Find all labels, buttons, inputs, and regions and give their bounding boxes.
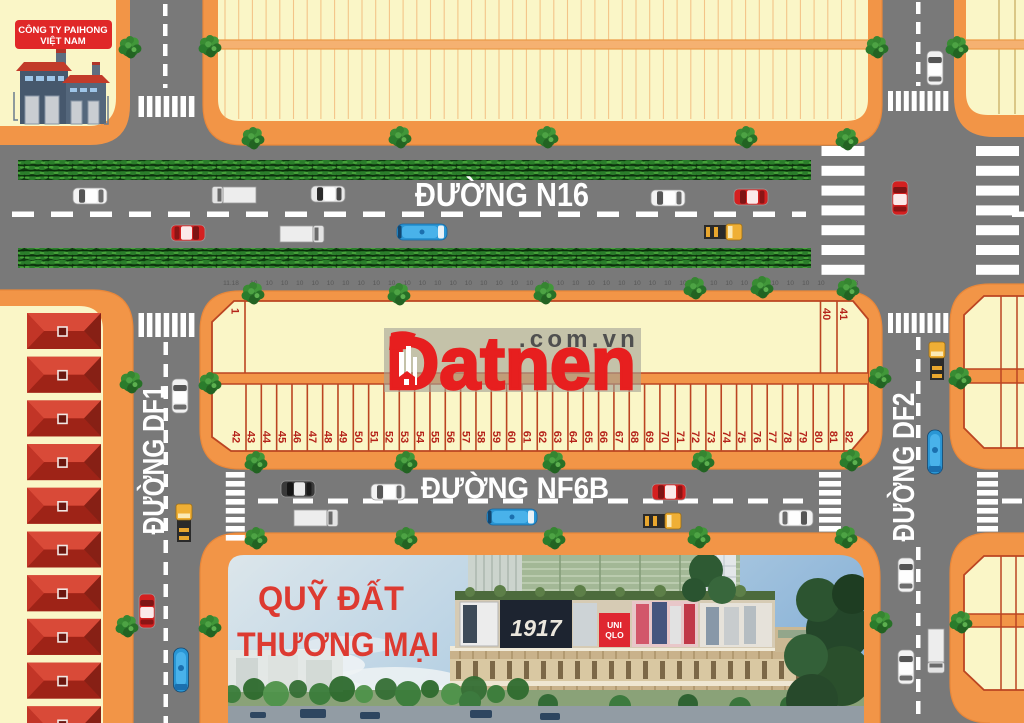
svg-text:10: 10: [511, 280, 519, 287]
svg-text:10: 10: [633, 280, 641, 287]
svg-text:46: 46: [291, 431, 303, 443]
svg-text:CÔNG TY PAIHONG: CÔNG TY PAIHONG: [18, 24, 107, 36]
svg-text:70: 70: [659, 431, 671, 443]
svg-text:73: 73: [705, 431, 717, 443]
svg-text:40: 40: [820, 308, 832, 320]
svg-text:54: 54: [413, 431, 425, 444]
svg-text:78: 78: [781, 431, 793, 443]
svg-text:63: 63: [551, 431, 563, 443]
svg-text:QUỸ ĐẤT: QUỸ ĐẤT: [258, 580, 404, 618]
svg-text:VIỆT NAM: VIỆT NAM: [40, 35, 85, 47]
svg-text:10: 10: [572, 280, 580, 287]
svg-text:72: 72: [689, 431, 701, 443]
svg-text:10: 10: [357, 280, 365, 287]
svg-text:10: 10: [342, 280, 350, 287]
svg-text:79: 79: [797, 431, 809, 443]
svg-text:10: 10: [495, 280, 503, 287]
svg-text:10: 10: [603, 280, 611, 287]
svg-text:64: 64: [567, 431, 579, 444]
svg-text:71: 71: [674, 431, 686, 443]
svg-text:67: 67: [613, 431, 625, 443]
svg-text:68: 68: [628, 431, 640, 443]
svg-text:53: 53: [398, 431, 410, 443]
svg-text:10: 10: [557, 280, 565, 287]
svg-text:10: 10: [281, 280, 289, 287]
svg-text:10: 10: [802, 280, 810, 287]
svg-text:80: 80: [812, 431, 824, 443]
svg-text:58: 58: [475, 431, 487, 443]
svg-text:10: 10: [449, 280, 457, 287]
svg-text:69: 69: [643, 431, 655, 443]
svg-text:49: 49: [337, 431, 349, 443]
svg-text:Datnen: Datnen: [386, 322, 636, 405]
svg-text:10: 10: [771, 280, 779, 287]
svg-text:65: 65: [582, 431, 594, 443]
svg-text:10: 10: [434, 280, 442, 287]
svg-text:43: 43: [245, 431, 257, 443]
svg-text:QLO: QLO: [605, 630, 624, 640]
svg-text:66: 66: [597, 431, 609, 443]
svg-text:10: 10: [787, 280, 795, 287]
svg-text:75: 75: [735, 431, 747, 443]
svg-text:10: 10: [526, 280, 534, 287]
svg-text:THƯƠNG MẠI: THƯƠNG MẠI: [237, 626, 439, 664]
svg-text:ĐƯỜNG DF2: ĐƯỜNG DF2: [885, 393, 921, 542]
svg-text:10: 10: [710, 280, 718, 287]
svg-text:10: 10: [618, 280, 626, 287]
svg-text:10: 10: [296, 280, 304, 287]
svg-text:47: 47: [306, 431, 318, 443]
svg-text:ĐƯỜNG N16: ĐƯỜNG N16: [415, 176, 589, 213]
svg-text:77: 77: [766, 431, 778, 443]
svg-text:55: 55: [429, 431, 441, 443]
svg-text:10: 10: [649, 280, 657, 287]
svg-text:59: 59: [490, 431, 502, 443]
svg-text:1: 1: [229, 308, 241, 314]
svg-text:81: 81: [827, 431, 839, 443]
svg-text:11.18: 11.18: [223, 280, 239, 287]
svg-text:42: 42: [229, 431, 241, 443]
svg-text:ĐƯỜNG DF1: ĐƯỜNG DF1: [135, 386, 171, 535]
svg-text:76: 76: [751, 431, 763, 443]
svg-text:10: 10: [265, 280, 273, 287]
svg-text:10: 10: [311, 280, 319, 287]
svg-text:82: 82: [843, 431, 855, 443]
svg-text:52: 52: [383, 431, 395, 443]
svg-text:74: 74: [720, 431, 732, 444]
svg-text:10: 10: [587, 280, 595, 287]
svg-text:10: 10: [741, 280, 749, 287]
svg-text:45: 45: [275, 431, 287, 443]
svg-text:60: 60: [505, 431, 517, 443]
svg-text:10: 10: [419, 280, 427, 287]
svg-text:10: 10: [725, 280, 733, 287]
svg-text:51: 51: [367, 431, 379, 443]
svg-text:48: 48: [321, 431, 333, 443]
svg-text:10: 10: [465, 280, 473, 287]
svg-text:50: 50: [352, 431, 364, 443]
svg-text:10: 10: [480, 280, 488, 287]
svg-text:44: 44: [260, 431, 272, 444]
svg-text:41: 41: [837, 308, 849, 320]
svg-text:10: 10: [664, 280, 672, 287]
svg-text:10: 10: [817, 280, 825, 287]
svg-text:UNI: UNI: [607, 620, 622, 630]
svg-text:ĐƯỜNG NF6B: ĐƯỜNG NF6B: [421, 471, 609, 505]
svg-text:61: 61: [521, 431, 533, 443]
svg-text:10: 10: [327, 280, 335, 287]
svg-text:57: 57: [459, 431, 471, 443]
svg-text:1917: 1917: [510, 615, 562, 641]
svg-text:62: 62: [536, 431, 548, 443]
svg-text:10: 10: [373, 280, 381, 287]
svg-text:56: 56: [444, 431, 456, 443]
